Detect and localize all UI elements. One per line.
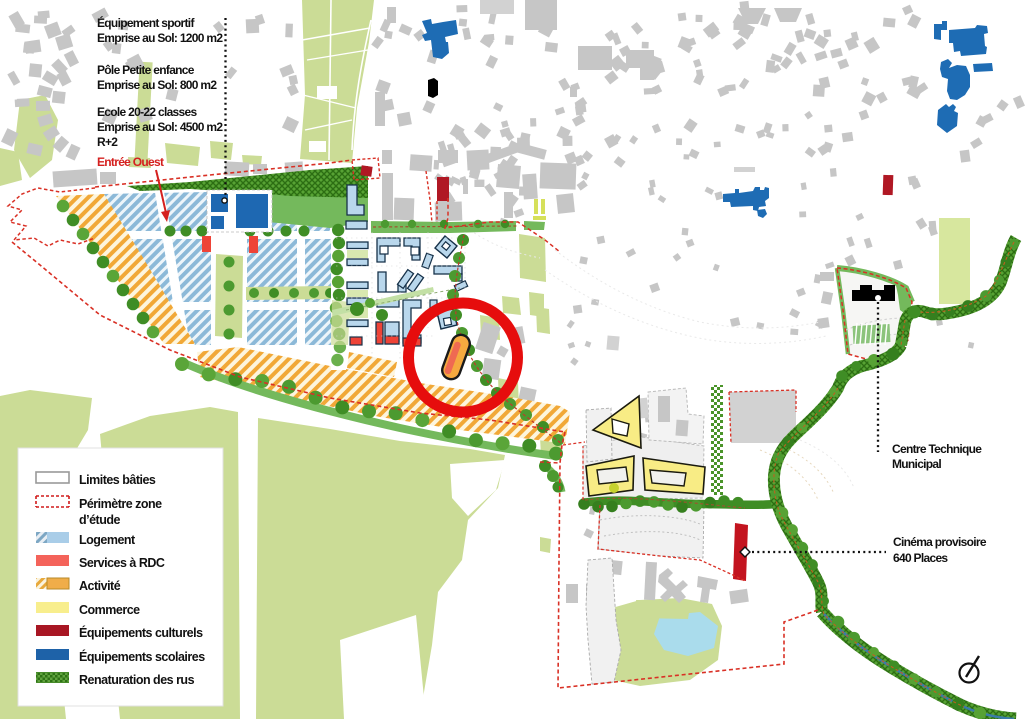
svg-text:Équipement sportif: Équipement sportif <box>97 15 195 30</box>
svg-text:Limites bâties: Limites bâties <box>79 473 156 487</box>
svg-text:Périmètre zone: Périmètre zone <box>79 497 162 511</box>
svg-text:Activité: Activité <box>79 579 121 593</box>
svg-text:Municipal: Municipal <box>892 457 941 471</box>
svg-text:Logement: Logement <box>79 533 136 547</box>
svg-text:Renaturation des rus: Renaturation des rus <box>79 673 195 687</box>
svg-text:Équipements culturels: Équipements culturels <box>79 625 203 640</box>
svg-text:d’étude: d’étude <box>79 513 120 527</box>
svg-text:Équipements scolaires: Équipements scolaires <box>79 649 205 664</box>
svg-text:Entrée Ouest: Entrée Ouest <box>97 155 164 169</box>
svg-text:Centre Technique: Centre Technique <box>892 442 982 456</box>
svg-text:R+2: R+2 <box>97 135 118 149</box>
svg-text:Services à RDC: Services à RDC <box>79 556 165 570</box>
svg-text:Pôle Petite enfance: Pôle Petite enfance <box>97 63 195 77</box>
svg-text:Ecole 20-22 classes: Ecole 20-22 classes <box>97 105 197 119</box>
svg-text:Cinéma provisoire: Cinéma provisoire <box>893 535 987 549</box>
svg-text:Emprise au Sol: 800 m2: Emprise au Sol: 800 m2 <box>97 78 217 92</box>
svg-text:Emprise au Sol: 1200 m2: Emprise au Sol: 1200 m2 <box>97 31 223 45</box>
svg-text:Emprise au Sol: 4500 m2: Emprise au Sol: 4500 m2 <box>97 120 223 134</box>
svg-text:Commerce: Commerce <box>79 603 140 617</box>
svg-text:640 Places: 640 Places <box>893 551 948 565</box>
